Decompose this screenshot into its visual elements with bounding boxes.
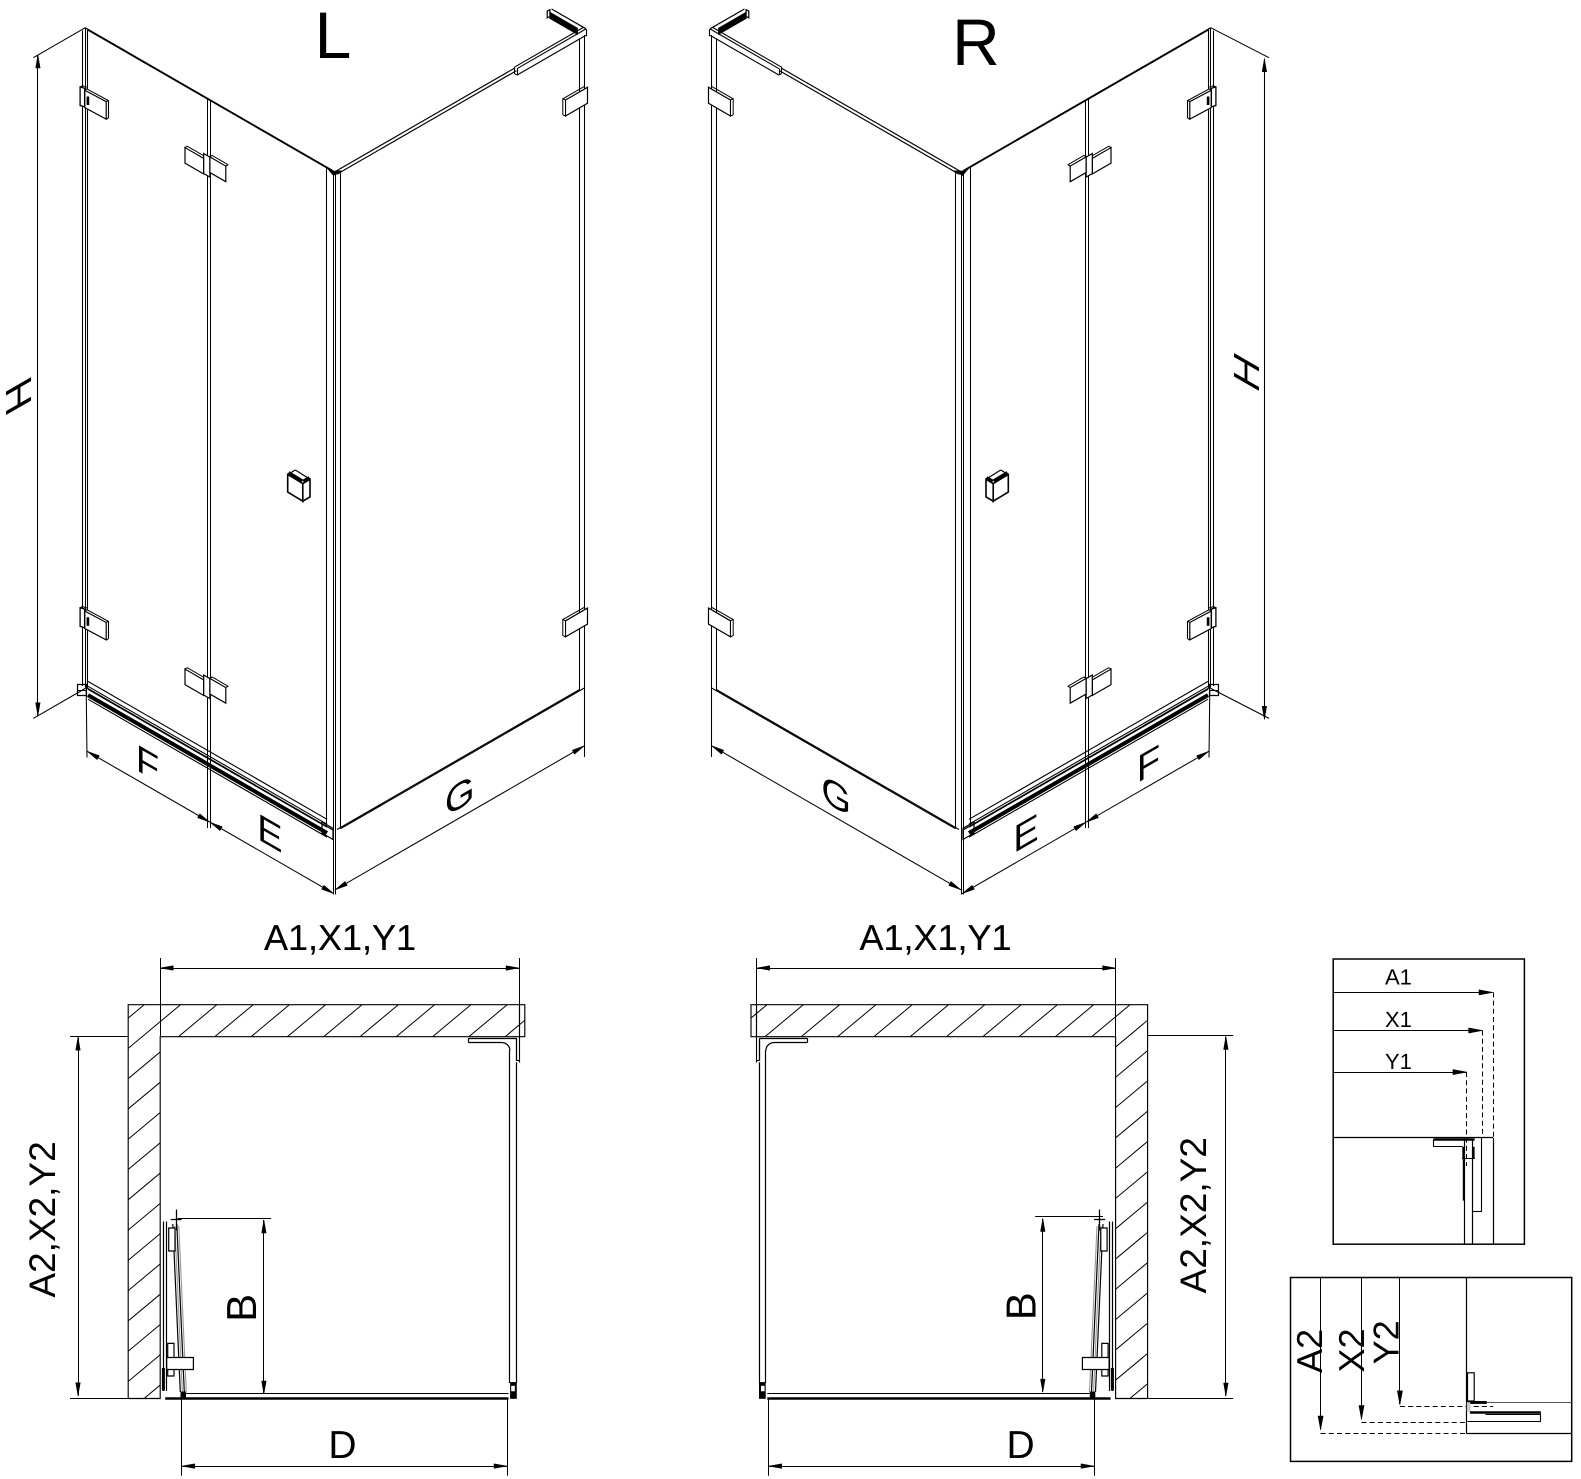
svg-text:A2,X2,Y2: A2,X2,Y2 [1173,1137,1214,1293]
svg-text:X1: X1 [1385,1007,1412,1032]
svg-text:A1: A1 [1385,965,1412,990]
svg-text:A2: A2 [1289,1329,1330,1373]
svg-text:A1,X1,Y1: A1,X1,Y1 [264,917,416,958]
svg-text:D: D [328,1424,356,1467]
svg-text:B: B [997,1292,1044,1320]
svg-text:A1,X1,Y1: A1,X1,Y1 [859,917,1011,958]
svg-text:Y1: Y1 [1385,1049,1412,1074]
svg-text:B: B [218,1294,265,1322]
svg-text:A2,X2,Y2: A2,X2,Y2 [22,1141,63,1297]
svg-text:L: L [315,0,352,72]
svg-text:Y2: Y2 [1365,1320,1406,1364]
svg-text:R: R [952,5,1000,79]
svg-text:D: D [1007,1424,1035,1467]
